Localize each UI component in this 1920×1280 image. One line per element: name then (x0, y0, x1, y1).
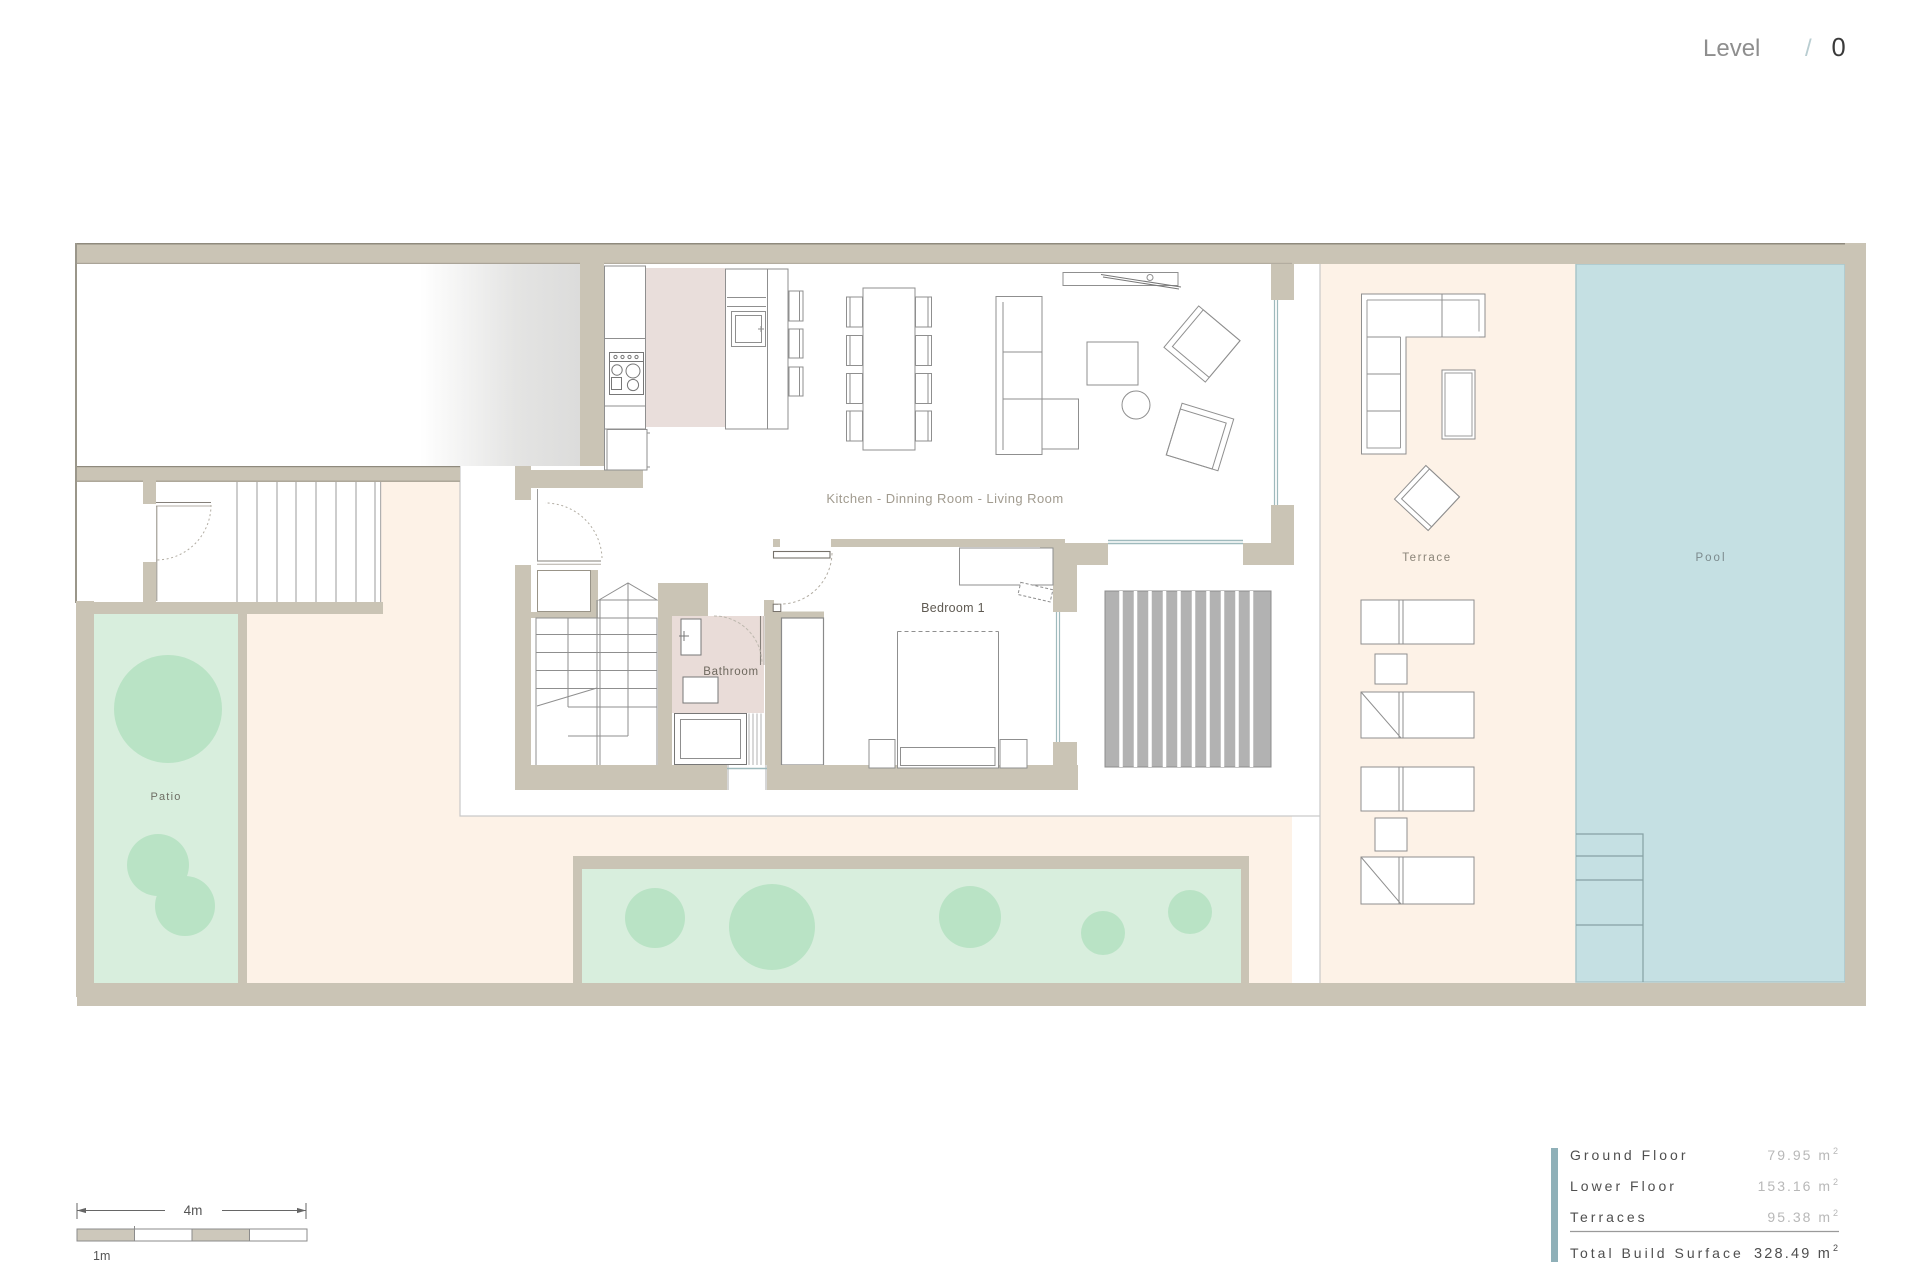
svg-text:Level: Level (1703, 35, 1760, 62)
svg-text:1m: 1m (93, 1249, 110, 1263)
svg-text:0: 0 (1832, 34, 1846, 62)
svg-text:Bathroom: Bathroom (703, 666, 758, 678)
svg-text:Total Build Surface: Total Build Surface (1570, 1245, 1744, 1261)
svg-text:/: / (1805, 35, 1812, 62)
svg-text:4m: 4m (184, 1203, 203, 1218)
svg-text:328.49 m: 328.49 m (1754, 1246, 1832, 1262)
svg-text:2: 2 (1833, 1243, 1838, 1253)
svg-text:Terrace: Terrace (1402, 552, 1452, 564)
svg-text:2: 2 (1833, 1177, 1838, 1187)
svg-text:153.16 m: 153.16 m (1758, 1178, 1832, 1194)
svg-text:Ground Floor: Ground Floor (1570, 1147, 1688, 1163)
svg-text:2: 2 (1833, 1146, 1838, 1156)
svg-text:Pool: Pool (1695, 552, 1726, 564)
svg-text:95.38 m: 95.38 m (1767, 1209, 1832, 1225)
svg-text:Bedroom 1: Bedroom 1 (921, 601, 985, 615)
svg-text:79.95 m: 79.95 m (1767, 1147, 1832, 1163)
svg-text:Patio: Patio (150, 791, 181, 803)
svg-text:Kitchen - Dinning Room - Livin: Kitchen - Dinning Room - Living Room (826, 491, 1063, 506)
svg-text:Terraces: Terraces (1570, 1209, 1648, 1225)
svg-text:2: 2 (1833, 1208, 1838, 1218)
svg-text:Lower Floor: Lower Floor (1570, 1178, 1677, 1194)
